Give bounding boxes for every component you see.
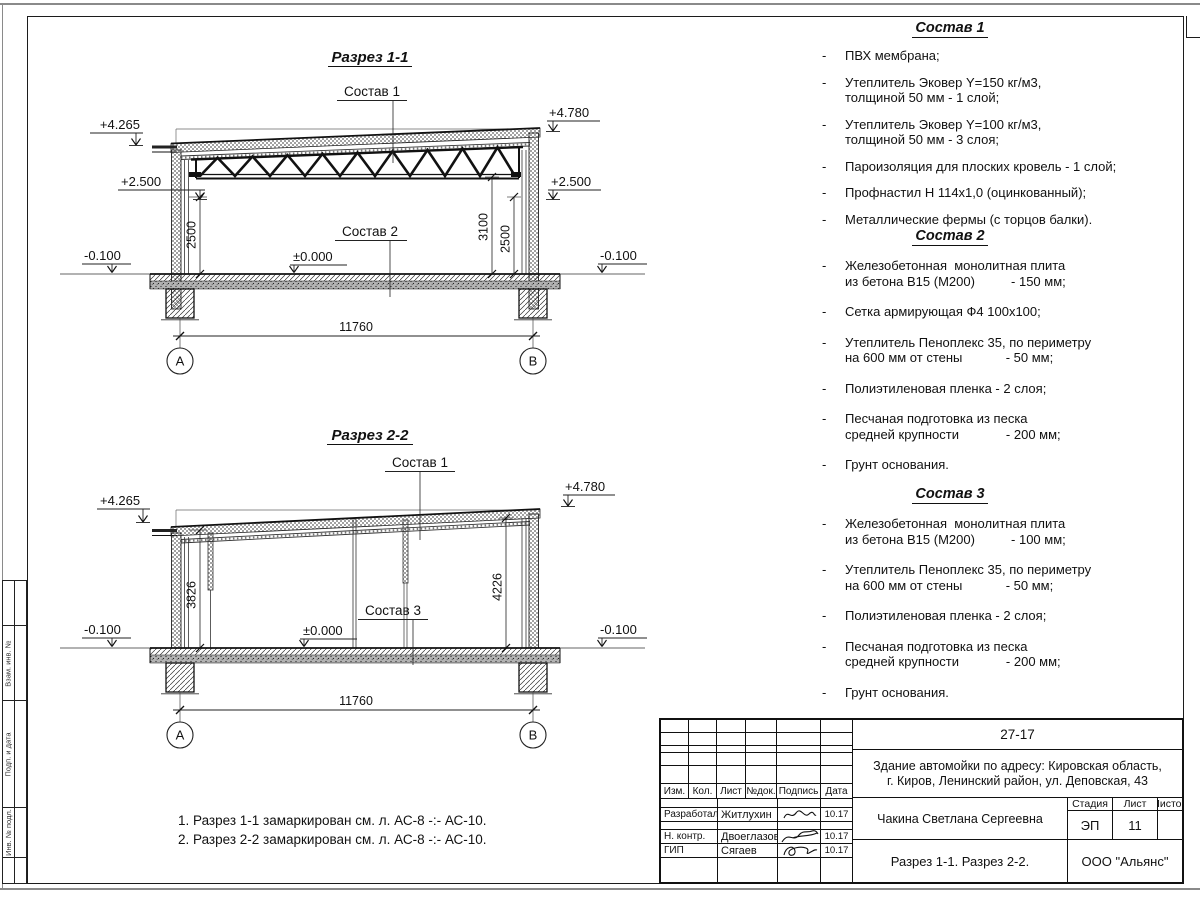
tb-cell xyxy=(661,799,718,808)
tb-sheets-total xyxy=(1158,811,1182,840)
tb-cell xyxy=(661,746,689,753)
callout-label: Состав 1 xyxy=(392,455,448,470)
tb-header-izm: Изм. xyxy=(661,784,689,799)
side-strip-cell xyxy=(3,858,15,883)
tb-cell xyxy=(661,858,718,882)
callout-sostav-1: Состав 1 xyxy=(385,455,455,540)
list-item: -Утеплитель Пеноплекс 35, по периметруна… xyxy=(800,335,1200,366)
tb-sheets-label: Листов xyxy=(1158,798,1182,811)
tb-signature-cell xyxy=(778,808,821,822)
tb-cell xyxy=(777,733,821,746)
floor-slab xyxy=(150,275,560,282)
tb-header-podpis: Подпись xyxy=(777,784,821,799)
tb-signature-cell xyxy=(778,844,821,858)
bullet-dash: - xyxy=(800,212,845,228)
elevation-mark: -0.100 xyxy=(560,622,647,648)
list-item: -Металлические фермы (с торцов балки). xyxy=(800,212,1200,228)
list-item: -Железобетонная монолитная плитаиз бетон… xyxy=(800,516,1200,547)
foundation-right xyxy=(519,289,547,318)
dim-height-label: 4226 xyxy=(491,573,505,601)
composition-list-2: Состав 2 -Железобетонная монолитная плит… xyxy=(800,228,1200,473)
tb-cell xyxy=(718,799,778,808)
tb-project-line2: г. Киров, Ленинский район, ул. Деповская… xyxy=(873,774,1162,789)
tb-doc-code: 27-17 xyxy=(853,720,1182,750)
elevation-label: -0.100 xyxy=(84,622,121,637)
tb-cell xyxy=(717,746,746,753)
tb-cell xyxy=(689,753,717,766)
tb-sheet-number: 11 xyxy=(1113,811,1158,840)
section-1-1-drawing: Разрез 1-1 xyxy=(55,35,655,395)
elevation-label: +4.780 xyxy=(549,105,589,120)
composition-list-1: Состав 1 -ПВХ мембрана; -Утеплитель Эков… xyxy=(800,20,1200,227)
elevation-mark: +4.265 xyxy=(97,493,150,523)
tb-cell xyxy=(777,746,821,753)
bullet-dash: - xyxy=(800,411,845,442)
tb-cell xyxy=(718,822,778,830)
section-2-2-drawing: Разрез 2-2 xyxy=(55,415,655,785)
tb-cell xyxy=(717,720,746,733)
note-line: 2. Разрез 2-2 замаркирован см. л. АС-8 -… xyxy=(178,831,487,850)
note-line: 1. Разрез 1-1 замаркирован см. л. АС-8 -… xyxy=(178,812,487,831)
callout-label: Состав 3 xyxy=(365,603,421,618)
bullet-dash: - xyxy=(800,48,845,64)
bullet-dash: - xyxy=(800,159,845,175)
bullet-dash: - xyxy=(800,516,845,547)
wall-left xyxy=(172,533,182,648)
sand-layer xyxy=(150,281,560,289)
list-item: -Полиэтиленовая пленка - 2 слоя; xyxy=(800,608,1200,624)
elevation-mark: ±0.000 xyxy=(290,249,348,273)
composition-title: Состав 1 xyxy=(800,20,1100,36)
tb-cell xyxy=(661,733,689,746)
list-item: -Профнастил Н 114х1,0 (оцинкованный); xyxy=(800,185,1200,201)
dim-span-label: 11760 xyxy=(339,694,373,708)
signature xyxy=(779,843,819,859)
tb-cell xyxy=(821,766,853,784)
floor-slab xyxy=(150,649,560,656)
tb-author: Чакина Светлана Сергеевна xyxy=(853,798,1068,840)
tb-cell xyxy=(821,720,853,733)
tb-name: Сягаев xyxy=(718,844,778,858)
side-strip-cell: Инв. № подл. xyxy=(3,808,15,858)
dim-height-label: 2500 xyxy=(185,221,199,249)
list-item: -ПВХ мембрана; xyxy=(800,48,1200,64)
tb-company: ООО "Альянс" xyxy=(1068,840,1182,882)
tb-cell xyxy=(746,720,777,733)
elevation-mark: +4.780 xyxy=(546,105,600,132)
axis-letter: А xyxy=(176,354,185,369)
elevation-label: +4.780 xyxy=(565,479,605,494)
list-item: -Железобетонная монолитная плитаиз бетон… xyxy=(800,258,1200,289)
dim-extension-lines xyxy=(189,177,521,197)
elevation-label: +2.500 xyxy=(551,174,591,189)
title-block: Изм. Кол. Лист №док. Подпись Дата Разраб… xyxy=(659,718,1184,884)
tb-cell xyxy=(718,858,778,882)
tb-cell xyxy=(777,753,821,766)
tb-cell xyxy=(821,822,853,830)
tb-cell xyxy=(821,858,853,882)
axis-letter: В xyxy=(529,354,538,369)
bullet-dash: - xyxy=(800,258,845,289)
tb-cell xyxy=(717,766,746,784)
list-item: -Песчаная подготовка из пескасредней кру… xyxy=(800,639,1200,670)
tb-role: Н. контр. xyxy=(661,830,718,844)
foundation-left xyxy=(166,289,194,318)
list-item: -Утеплитель Эковер Y=100 кг/м3,толщиной … xyxy=(800,117,1200,148)
partition-wall-hatched xyxy=(403,520,408,583)
wall-right xyxy=(529,514,539,648)
bullet-dash: - xyxy=(800,608,845,624)
axis-letter: А xyxy=(176,728,185,743)
parapet-channel xyxy=(152,146,177,149)
truss-web xyxy=(200,147,515,176)
tb-date: 10.17 xyxy=(821,830,853,844)
tb-cell xyxy=(821,746,853,753)
bullet-dash: - xyxy=(800,304,845,320)
tb-cell xyxy=(821,753,853,766)
elevation-label: +4.265 xyxy=(100,117,140,132)
tb-name: Житлухин xyxy=(718,808,778,822)
side-strip-label: Подп. и дата xyxy=(4,732,13,776)
tb-cell xyxy=(778,799,821,808)
elevation-mark: +4.265 xyxy=(90,117,143,146)
side-strip-cell: Взам. инв. № xyxy=(3,626,15,701)
tb-cell xyxy=(746,746,777,753)
side-strip-label: Взам. инв. № xyxy=(4,640,13,686)
tb-cell xyxy=(689,720,717,733)
elevation-label: -0.100 xyxy=(600,622,637,637)
side-strip-cell xyxy=(15,626,27,701)
side-stamp-strip: Взам. инв. № Подп. и дата Инв. № подл. xyxy=(2,580,27,884)
composition-list-3: Состав 3 -Железобетонная монолитная плит… xyxy=(800,486,1200,700)
tb-cell xyxy=(777,766,821,784)
tb-cell xyxy=(661,766,689,784)
composition-title: Состав 3 xyxy=(800,486,1100,502)
elevation-label: -0.100 xyxy=(84,248,121,263)
foundation-right xyxy=(519,663,547,692)
bullet-dash: - xyxy=(800,457,845,473)
callout-label: Состав 1 xyxy=(344,84,400,99)
elevation-mark: -0.100 xyxy=(60,622,150,648)
side-strip-cell xyxy=(15,581,27,626)
sand-layer xyxy=(150,655,560,663)
tb-header-ndok: №док. xyxy=(746,784,777,799)
tb-name: Двоеглазов xyxy=(718,830,778,844)
elevation-mark: -0.100 xyxy=(560,248,647,274)
tb-role: Разработал xyxy=(661,808,718,822)
list-item: -Грунт основания. xyxy=(800,457,1200,473)
tb-cell xyxy=(746,733,777,746)
list-item: -Полиэтиленовая пленка - 2 слоя; xyxy=(800,381,1200,397)
bullet-dash: - xyxy=(800,75,845,106)
parapet-channel xyxy=(152,529,177,532)
foundation-left xyxy=(166,663,194,692)
paper-edge-top xyxy=(0,3,1200,5)
dim-height-label: 2500 xyxy=(499,225,513,253)
tb-date: 10.17 xyxy=(821,844,853,858)
elevation-mark: -0.100 xyxy=(60,248,150,274)
signature xyxy=(780,808,818,822)
notes: 1. Разрез 1-1 замаркирован см. л. АС-8 -… xyxy=(178,812,487,849)
tb-header-list: Лист xyxy=(717,784,746,799)
section-title: Разрез 2-2 xyxy=(331,427,409,444)
bullet-dash: - xyxy=(800,185,845,201)
list-item: -Утеплитель Пеноплекс 35, по периметруна… xyxy=(800,562,1200,593)
elevation-mark: +2.500 xyxy=(118,174,207,200)
tb-sheet-title: Разрез 1-1. Разрез 2-2. xyxy=(853,840,1068,882)
roof-insulation-band xyxy=(171,509,540,536)
tb-header-kol: Кол. xyxy=(689,784,717,799)
side-strip-cell xyxy=(15,808,27,858)
tb-cell xyxy=(689,766,717,784)
list-item: -Песчаная подготовка из пескасредней кру… xyxy=(800,411,1200,442)
list-item: -Сетка армирующая Ф4 100х100; xyxy=(800,304,1200,320)
list-item: -Грунт основания. xyxy=(800,685,1200,701)
dim-height-label: 3826 xyxy=(185,581,199,609)
tb-cell xyxy=(746,753,777,766)
bullet-dash: - xyxy=(800,335,845,366)
tb-cell xyxy=(661,720,689,733)
tb-cell xyxy=(778,858,821,882)
tb-header-data: Дата xyxy=(821,784,853,799)
elevation-label: +4.265 xyxy=(100,493,140,508)
elevation-label: -0.100 xyxy=(600,248,637,263)
tb-sheet-label: Лист xyxy=(1113,798,1158,811)
tb-role: ГИП xyxy=(661,844,718,858)
tb-stage-value: ЭП xyxy=(1068,811,1113,840)
tb-project: Здание автомойки по адресу: Кировская об… xyxy=(853,750,1182,798)
bullet-dash: - xyxy=(800,381,845,397)
bullet-dash: - xyxy=(800,639,845,670)
tb-project-line1: Здание автомойки по адресу: Кировская об… xyxy=(873,759,1162,774)
steel-columns xyxy=(185,518,527,648)
tb-cell xyxy=(746,766,777,784)
tb-cell xyxy=(689,733,717,746)
tb-cell xyxy=(689,746,717,753)
tb-cell xyxy=(661,753,689,766)
tb-cell xyxy=(661,822,718,830)
list-item: -Пароизоляция для плоских кровель - 1 сл… xyxy=(800,159,1200,175)
dim-span-label: 11760 xyxy=(339,320,373,334)
elevation-mark: +2.500 xyxy=(546,174,601,200)
tb-cell xyxy=(821,733,853,746)
truss-support-pad xyxy=(511,172,521,177)
tb-cell xyxy=(717,753,746,766)
truss-support-pad xyxy=(189,172,201,177)
side-strip-cell: Подп. и дата xyxy=(3,701,15,808)
dim-height-label: 3100 xyxy=(477,213,491,241)
elevation-label: +2.500 xyxy=(121,174,161,189)
interior-column xyxy=(208,533,213,590)
elevation-mark: +4.780 xyxy=(561,479,615,507)
partition-wall xyxy=(353,519,356,648)
drawing-sheet: Взам. инв. № Подп. и дата Инв. № подл. Р… xyxy=(0,0,1200,900)
list-item: -Утеплитель Эковер Y=150 кг/м3,толщиной … xyxy=(800,75,1200,106)
tb-cell xyxy=(821,799,853,808)
paper-edge-bottom xyxy=(0,888,1200,890)
side-strip-cell xyxy=(3,581,15,626)
tb-cell xyxy=(777,720,821,733)
tb-stage-label: Стадия xyxy=(1068,798,1113,811)
bullet-dash: - xyxy=(800,117,845,148)
bullet-dash: - xyxy=(800,562,845,593)
side-strip-cell xyxy=(15,701,27,808)
tb-date: 10.17 xyxy=(821,808,853,822)
callout-label: Состав 2 xyxy=(342,224,398,239)
tb-cell xyxy=(717,733,746,746)
axis-letter: В xyxy=(529,728,538,743)
elevation-label: ±0.000 xyxy=(293,249,333,264)
bullet-dash: - xyxy=(800,685,845,701)
elevation-mark: ±0.000 xyxy=(300,623,358,647)
composition-title: Состав 2 xyxy=(800,228,1100,244)
section-title: Разрез 1-1 xyxy=(331,49,408,66)
elevation-label: ±0.000 xyxy=(303,623,343,638)
side-strip-label: Инв. № подл. xyxy=(4,809,13,856)
